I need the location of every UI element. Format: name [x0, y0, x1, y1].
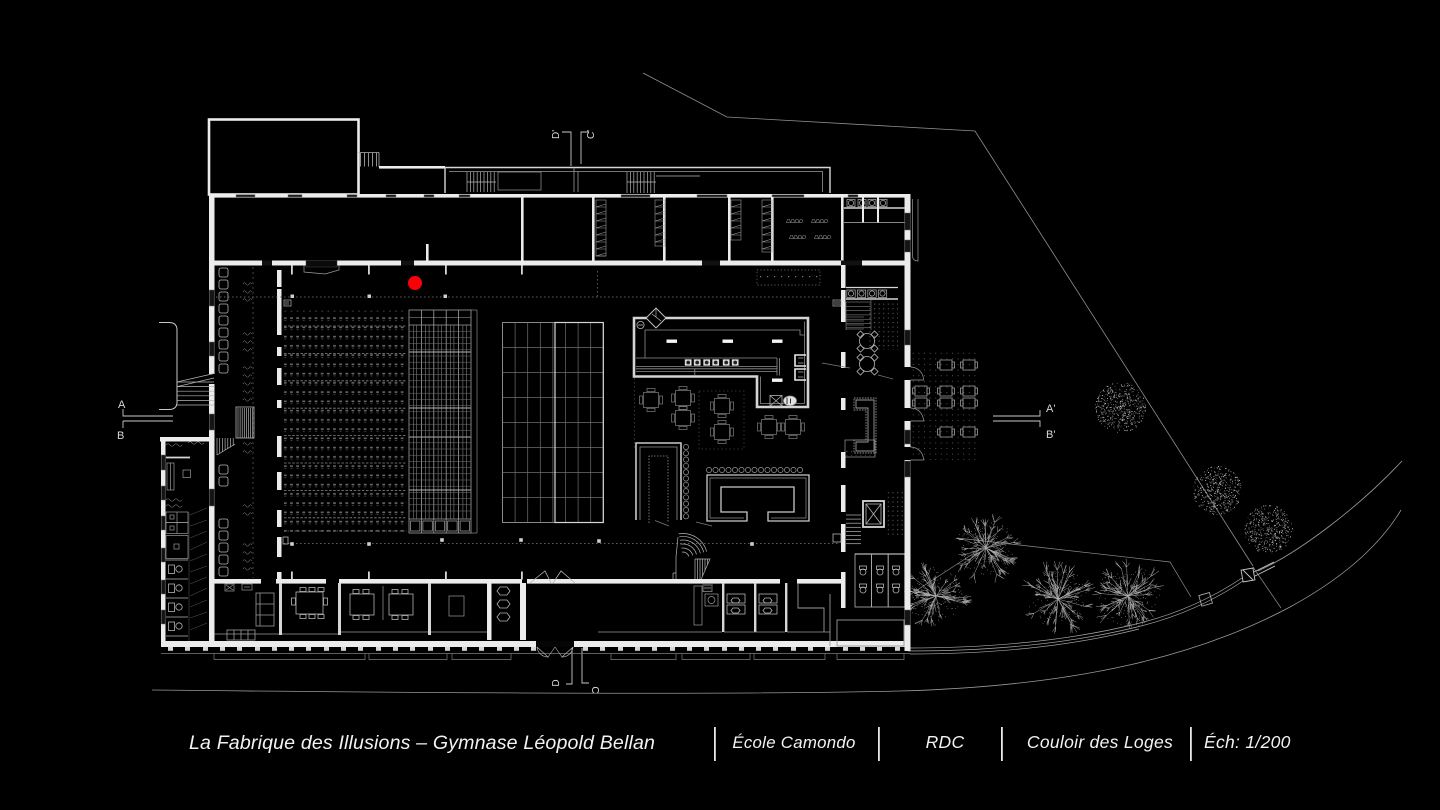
- svg-text:D': D': [551, 130, 562, 139]
- svg-text:Éch: 1/200: Éch: 1/200: [1204, 732, 1291, 752]
- svg-text:La Fabrique des Illusions – Gy: La Fabrique des Illusions – Gymnase Léop…: [189, 732, 655, 754]
- svg-text:RDC: RDC: [926, 732, 965, 752]
- svg-text:D: D: [551, 679, 562, 686]
- svg-text:Couloir des Loges: Couloir des Loges: [1027, 732, 1173, 752]
- svg-text:B': B': [1046, 429, 1055, 441]
- svg-text:École Camondo: École Camondo: [732, 733, 855, 752]
- svg-text:B: B: [117, 430, 124, 442]
- svg-text:C': C': [586, 130, 597, 139]
- svg-text:A': A': [1046, 403, 1055, 415]
- svg-text:A: A: [118, 399, 126, 411]
- svg-text:C: C: [589, 686, 600, 693]
